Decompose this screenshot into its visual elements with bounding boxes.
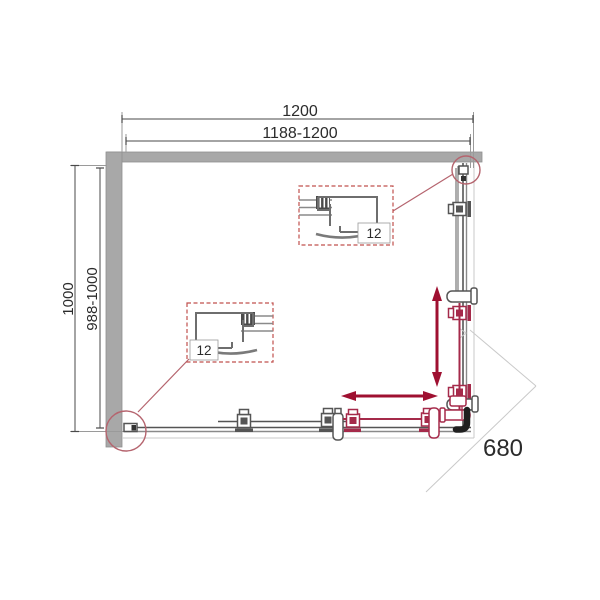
door-knob-right <box>429 408 439 438</box>
dim-height-range: 988-1000 <box>84 267 101 330</box>
fixed-panel-right <box>447 163 478 431</box>
detail-box-top: 12 <box>299 186 393 245</box>
leader-bottom <box>138 359 189 412</box>
fixed-panel-bottom <box>218 409 349 441</box>
dim-width-range: 1188-1200 <box>262 125 337 142</box>
leader-top <box>393 174 453 211</box>
wall-profile-bottom-left <box>124 424 137 432</box>
slide-direction-vertical-arrow <box>432 286 442 387</box>
dim-height-total: 1000 <box>60 282 77 315</box>
panel-clamp-gray <box>449 201 472 217</box>
technical-drawing: 1200 1188-1200 1000 988-1000 <box>0 0 600 600</box>
detail-callouts <box>106 156 480 451</box>
door-knob-left <box>333 409 343 441</box>
wall-top <box>107 152 482 162</box>
walls <box>106 152 482 447</box>
dim-width-total: 1200 <box>282 103 318 120</box>
panel-clamp-bottom-1 <box>235 410 253 433</box>
detail-box-bottom: 12 <box>187 303 273 362</box>
bottom-track <box>124 428 471 432</box>
support-bar-upper <box>447 288 477 304</box>
slide-direction-horizontal-arrow <box>341 391 438 401</box>
wall-left <box>106 152 122 447</box>
detail-label-bottom: 12 <box>196 343 211 358</box>
dim-entry-width: 680 <box>483 435 523 462</box>
detail-label-top: 12 <box>366 226 381 241</box>
door-roller-bottom-1 <box>344 410 361 433</box>
